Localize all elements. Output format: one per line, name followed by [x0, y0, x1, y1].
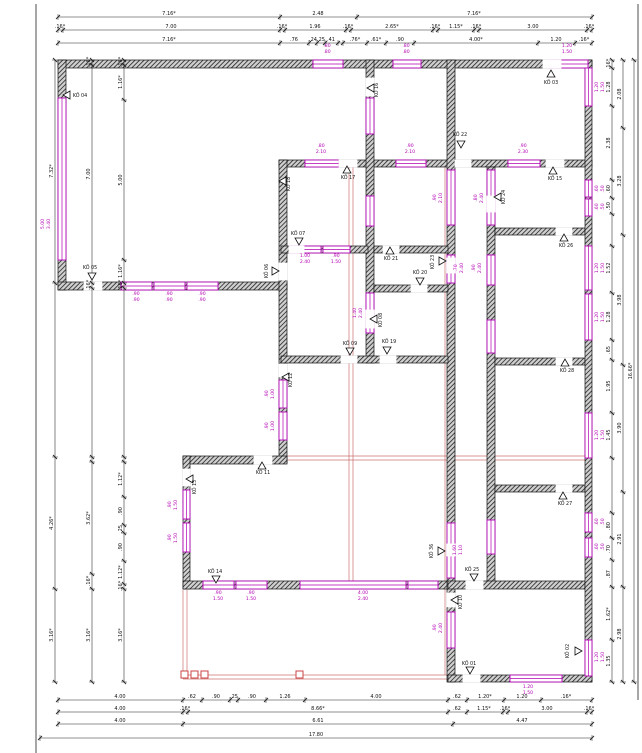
dim-label: .65 [606, 346, 612, 354]
door-marker [466, 667, 474, 674]
dim-label: 3.28 [617, 175, 623, 186]
dim-label: .90 [118, 507, 124, 515]
dim-label: .16* [606, 58, 612, 69]
sheet-frame-layer [36, 4, 638, 753]
window-dim-label: .90 [264, 390, 270, 397]
window-dim-label: 2.40 [479, 193, 485, 203]
dim-label: 1.28 [606, 81, 612, 92]
window-dim-label: 1.50 [173, 533, 179, 543]
door-gap [380, 356, 397, 364]
door-gap [487, 196, 496, 213]
window-dim-label: 1.50 [246, 596, 256, 602]
window-dim-label: 2.10 [316, 149, 326, 155]
dim-label: .87 [606, 570, 612, 578]
dim-label: .25 [317, 37, 325, 43]
dim-label: 7.00 [165, 24, 176, 30]
window-dim-label: 1.50 [600, 312, 606, 322]
dim-label: 1.16* [118, 264, 124, 278]
window-dim-label: 2.40 [477, 263, 483, 273]
door-marker [457, 141, 465, 148]
window-dim-label: .90 [406, 143, 413, 149]
window-dim-label: 1.20 [562, 43, 572, 49]
dim-label: 17.80 [309, 732, 323, 738]
window-dim-label: .90 [432, 194, 438, 201]
dim-label: 1.62* [606, 607, 612, 621]
post-marker [296, 671, 303, 678]
window-dim-label: 2.10 [438, 193, 444, 203]
dim-label: .60 [606, 185, 612, 193]
dim-label: .41 [327, 37, 335, 43]
dim-label: 5.00 [118, 174, 124, 185]
dim-label: 16.66* [628, 362, 634, 379]
dim-label: .24 [309, 37, 317, 43]
dim-label: 2.98 [617, 628, 623, 639]
door-label: KÖ 02 [564, 644, 571, 658]
door-label: KÖ 12 [287, 373, 294, 387]
door-marker [547, 70, 555, 77]
post-marker [201, 671, 208, 678]
door-gap [543, 60, 562, 69]
dim-label: 8.66* [311, 706, 325, 712]
window-dim-label: .90 [214, 590, 221, 596]
dim-label: .76* [350, 37, 361, 43]
dim-label: .16* [55, 24, 66, 30]
door-marker [383, 347, 391, 354]
dim-label: .25 [230, 694, 238, 700]
dim-label: .90 [248, 694, 256, 700]
door-label: KÖ 05 [83, 264, 97, 271]
dim-label: .61* [371, 37, 382, 43]
door-gap [466, 581, 484, 590]
dim-label: 3.90 [617, 422, 623, 433]
window-dim-label: .90 [264, 422, 270, 429]
window-dim-label: .90 [132, 291, 139, 297]
door-gap [455, 160, 472, 168]
post-marker [181, 671, 188, 678]
dimension-layer: 7.16*2.487.16*.16*7.00.16*1.96.16*2.65*.… [38, 11, 637, 741]
door-label: KÖ 01 [462, 660, 476, 667]
door-marker [295, 238, 303, 245]
dim-label: .16* [86, 575, 92, 586]
window-dim-label: 1.00 [270, 421, 276, 431]
dim-label: 1.20 [550, 37, 561, 43]
dim-label: .16* [118, 279, 124, 290]
dim-label: .50 [606, 202, 612, 210]
dim-label: 3.00 [541, 706, 552, 712]
dim-label: 6.61 [312, 718, 323, 724]
window-dim-label: .80 [323, 49, 330, 55]
dim-label: 2.08 [617, 88, 623, 99]
window-dim-label: 1.20 [594, 263, 600, 273]
window-dim-label: 1.20 [594, 312, 600, 322]
dim-label: 3.98 [617, 294, 623, 305]
door-label: KÖ 16 [373, 83, 380, 97]
dim-label: .16* [430, 24, 441, 30]
window-dim-label: 3.40 [46, 219, 52, 229]
dim-label: 7.16* [162, 37, 176, 43]
window-dim-label: .90 [198, 297, 205, 303]
dim-label: 1.12* [118, 565, 124, 579]
dim-label: 3.62* [86, 511, 92, 525]
window-dim-label: 1.50 [213, 596, 223, 602]
door-gap [463, 675, 481, 683]
window-dim-label: 2.40 [300, 259, 310, 265]
dim-label: 7.00 [86, 168, 92, 179]
window-dim-label: 2.30 [518, 149, 528, 155]
window-dim-label: .60 [594, 203, 600, 210]
window-dim-label: .60 [594, 185, 600, 192]
door-label: KÖ 10 [457, 595, 464, 609]
door-label: KÖ 22 [453, 131, 467, 138]
dim-label: 4.26* [49, 516, 55, 530]
window-dim-label: 1.50 [600, 652, 606, 662]
dim-label: 7.16* [467, 11, 481, 17]
window-dim-label: 1.60 [452, 545, 458, 555]
door-marker [438, 547, 445, 555]
dim-label: .80 [606, 522, 612, 530]
door-marker [559, 492, 567, 499]
window-dim-label: 2.40 [358, 308, 364, 318]
door-gap [289, 246, 305, 254]
window-dim-label: .80 [317, 143, 324, 149]
window-dim-label: .90 [247, 590, 254, 596]
window-dim-label: 1.50 [173, 500, 179, 510]
dim-label: .90 [396, 37, 404, 43]
window-dim-label: .50 [600, 203, 606, 210]
window-dim-label: .80 [402, 49, 409, 55]
dim-label: .16* [86, 279, 92, 290]
door-label: KÖ 11 [256, 469, 270, 476]
window-dim-label: 2.40 [438, 623, 444, 633]
window-dim-label: 1.00 [270, 389, 276, 399]
door-marker [416, 278, 424, 285]
dim-label: .16* [471, 24, 482, 30]
door-label: KÖ 25 [465, 566, 479, 573]
door-marker [575, 647, 582, 655]
door-label: KÖ 24 [500, 190, 507, 204]
window-dim-label: 2.40 [358, 596, 368, 602]
window-labels-layer: .80.80.80.801.201.50.802.10.902.10.902.3… [40, 43, 606, 696]
door-label: KÖ 20 [413, 269, 427, 276]
dim-label: .16* [277, 24, 288, 30]
door-gap [279, 263, 288, 281]
dim-label: 3.00 [527, 24, 538, 30]
window-dim-label: .60 [594, 543, 600, 550]
dim-label: .62 [453, 694, 461, 700]
door-marker [470, 574, 478, 581]
dim-label: 3.16* [118, 628, 124, 642]
dim-label: 7.16* [162, 11, 176, 17]
dim-label: 4.00 [370, 694, 381, 700]
door-label: KÖ 17 [341, 174, 355, 181]
dim-label: .90 [212, 694, 220, 700]
window-dim-label: .50 [600, 543, 606, 550]
dim-label: 2.38 [606, 137, 612, 148]
door-label: KÖ 36 [428, 544, 435, 558]
door-label: KÖ 26 [559, 242, 573, 249]
window-dim-label: .90 [432, 624, 438, 631]
dim-label: 1.15* [477, 706, 491, 712]
dim-label: .16* [584, 24, 595, 30]
door-label: KÖ 18 [285, 177, 292, 191]
floor-plan-canvas: 7.16*2.487.16*.16*7.00.16*1.96.16*2.65*.… [0, 0, 642, 753]
door-label: KÖ 09 [343, 340, 357, 347]
window-dim-label: 5.00 [40, 219, 46, 229]
dim-label: 4.00 [114, 718, 125, 724]
window-dim-label: 1.20 [523, 684, 533, 690]
door-marker [88, 273, 96, 280]
dim-label: .76 [290, 37, 298, 43]
window-dim-label: .90 [165, 291, 172, 297]
dim-label: 1.16* [118, 75, 124, 89]
window-dim-label: 1.20 [594, 652, 600, 662]
door-gap [556, 485, 573, 493]
window-dim-label: 1.50 [523, 690, 533, 696]
door-label: KÖ 06 [263, 264, 270, 278]
dim-label: .16* [118, 56, 124, 67]
door-label: KÖ 23 [429, 255, 436, 269]
dim-label: 4.00 [114, 694, 125, 700]
door-label: KÖ 07 [291, 230, 305, 237]
window-dim-label: 1.10 [458, 545, 464, 555]
dim-label: 1.35 [606, 655, 612, 666]
dim-label: 4.47 [516, 718, 527, 724]
window-dim-label: .50 [600, 185, 606, 192]
dim-label: .16* [180, 706, 191, 712]
door-gap [339, 160, 358, 168]
dim-label: .62 [188, 694, 196, 700]
dim-label: .16* [118, 580, 124, 591]
window-dim-label: 1.50 [562, 49, 572, 55]
door-gap [411, 285, 428, 293]
dim-label: .62 [453, 706, 461, 712]
window-dim-label: 1.40 [352, 308, 358, 318]
dim-label: 1.96 [309, 24, 320, 30]
dim-label: 1.15* [449, 24, 463, 30]
window-dim-label: .70 [453, 264, 459, 271]
red-canopy-layer [181, 167, 585, 679]
window-dim-label: .90 [132, 297, 139, 303]
dim-label: .25 [118, 525, 124, 533]
wall-segment [281, 356, 448, 363]
dim-label: 1.28 [606, 311, 612, 322]
window-dim-label: .50 [600, 518, 606, 525]
window-dim-label: .90 [167, 501, 173, 508]
window-dim-label: 4.00 [358, 590, 368, 596]
dim-label: .16* [561, 694, 572, 700]
dim-label: 1.45 [606, 429, 612, 440]
dim-label: .16* [343, 24, 354, 30]
dim-label: 1.12* [118, 472, 124, 486]
dim-label: .16* [584, 706, 595, 712]
post-marker [191, 671, 198, 678]
window-dim-label: .90 [167, 534, 173, 541]
dim-label: 4.00* [469, 37, 483, 43]
window-dim-label: .90 [198, 291, 205, 297]
dim-label: .90 [118, 543, 124, 551]
dim-label: 3.16* [86, 628, 92, 642]
door-label: KÖ 08 [377, 313, 384, 327]
door-label: KÖ 28 [560, 367, 574, 374]
dim-label: .70 [606, 545, 612, 553]
door-label: KÖ 27 [558, 500, 572, 507]
window-dim-label: 1.50 [331, 259, 341, 265]
window-dim-label: .90 [471, 264, 477, 271]
door-label: KÖ 14 [208, 568, 222, 575]
window-dim-label: .80 [402, 43, 409, 49]
door-label: KÖ 21 [384, 255, 398, 262]
wall-segment [585, 60, 592, 682]
door-label: KÖ 04 [73, 92, 87, 99]
dim-label: .16* [86, 56, 92, 67]
door-label: KÖ 13 [191, 480, 198, 494]
door-label: KÖ 19 [382, 338, 396, 345]
dim-label: 1.52 [606, 262, 612, 273]
dim-label: 7.32* [49, 164, 55, 178]
window-dim-label: .90 [332, 253, 339, 259]
dim-label: 4.00 [114, 706, 125, 712]
door-marker [272, 267, 279, 275]
window-dim-label: 1.50 [600, 430, 606, 440]
window-dim-label: 1.50 [600, 82, 606, 92]
window-dim-label: .80 [323, 43, 330, 49]
window-dim-label: 2.40 [459, 263, 465, 273]
window-dim-label: .80 [473, 194, 479, 201]
dim-label: .16* [500, 706, 511, 712]
floor-plan-sheet: 7.16*2.487.16*.16*7.00.16*1.96.16*2.65*.… [0, 0, 642, 753]
door-label: KÖ 03 [544, 79, 558, 86]
door-gap [341, 356, 358, 364]
door-gap [546, 160, 565, 168]
dim-label: 1.95 [606, 380, 612, 391]
dim-label: .16* [579, 37, 590, 43]
dim-label: 2.48 [312, 11, 323, 17]
window-dim-label: 1.20 [594, 430, 600, 440]
window-dim-label: 2.10 [405, 149, 415, 155]
door-marker [549, 167, 557, 174]
dim-label: 1.26 [279, 694, 290, 700]
door-label: KÖ 15 [548, 175, 562, 182]
dim-label: 2.91 [617, 533, 623, 544]
dim-label: 2.65* [385, 24, 399, 30]
window-dim-label: 1.50 [600, 263, 606, 273]
dim-label: 1.20* [478, 694, 492, 700]
window-dim-label: .60 [594, 518, 600, 525]
window-dim-label: .90 [165, 297, 172, 303]
dim-label: 3.16* [49, 628, 55, 642]
window-dim-label: 1.00 [300, 253, 310, 259]
window-dim-label: 1.20 [594, 82, 600, 92]
window-dim-label: .90 [519, 143, 526, 149]
